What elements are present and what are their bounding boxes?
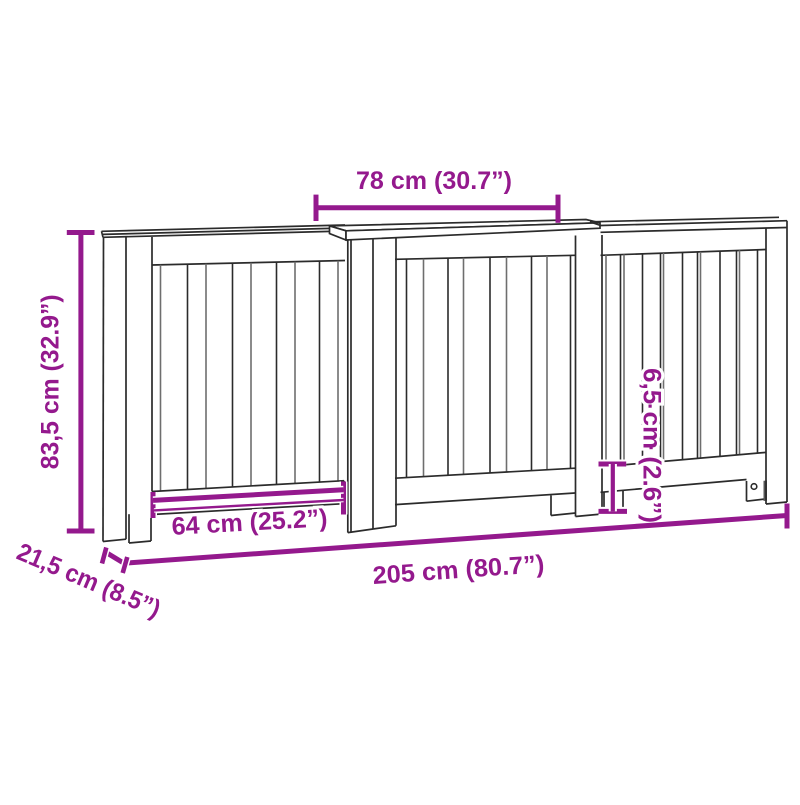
svg-text:78 cm (30.7”): 78 cm (30.7”) bbox=[356, 167, 512, 195]
svg-text:83,5 cm (32.9”): 83,5 cm (32.9”) bbox=[37, 294, 65, 469]
svg-text:6,5 cm (2.6”): 6,5 cm (2.6”) bbox=[638, 368, 666, 523]
